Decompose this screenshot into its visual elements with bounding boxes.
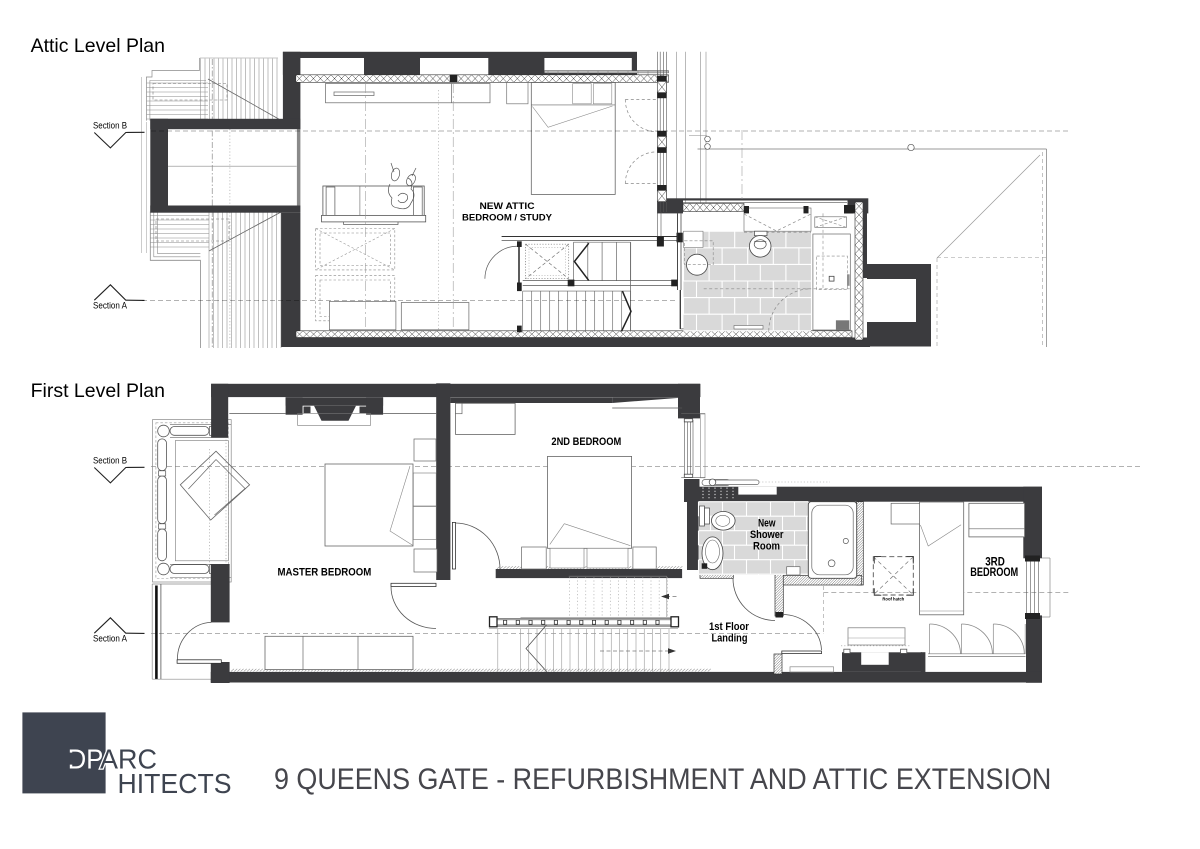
svg-text:9 QUEENS GATE - REFURBISHMENT: 9 QUEENS GATE - REFURBISHMENT AND ATTIC … xyxy=(274,763,1051,796)
svg-text:New: New xyxy=(758,518,776,530)
svg-text:Section A: Section A xyxy=(93,634,128,644)
svg-text:Room: Room xyxy=(753,541,780,553)
svg-text:Landing: Landing xyxy=(712,633,748,645)
svg-text:Shower: Shower xyxy=(750,529,784,541)
svg-text:1st Floor: 1st Floor xyxy=(709,621,750,633)
svg-text:MASTER BEDROOM: MASTER BEDROOM xyxy=(278,566,372,578)
svg-text:Roof hatch: Roof hatch xyxy=(882,597,904,602)
svg-text:BEDROOM / STUDY: BEDROOM / STUDY xyxy=(462,212,553,222)
svg-text:Attic Level Plan: Attic Level Plan xyxy=(31,35,165,57)
svg-text:Section B: Section B xyxy=(93,121,127,131)
svg-text:First Level Plan: First Level Plan xyxy=(31,380,165,402)
svg-text:Section A: Section A xyxy=(93,301,128,311)
svg-text:Section B: Section B xyxy=(93,456,127,466)
svg-text:2ND BEDROOM: 2ND BEDROOM xyxy=(551,436,621,448)
svg-text:NEW ATTIC: NEW ATTIC xyxy=(480,201,535,211)
svg-text:HITECTS: HITECTS xyxy=(118,768,232,799)
svg-text:BEDROOM: BEDROOM xyxy=(970,565,1018,579)
